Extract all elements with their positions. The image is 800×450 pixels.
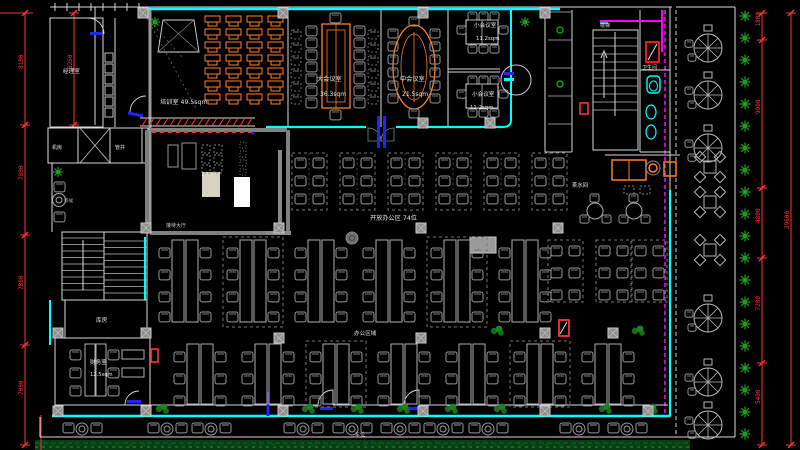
chair <box>431 292 442 302</box>
chair <box>214 145 222 153</box>
tree-icon <box>741 276 744 279</box>
training-desk <box>247 68 262 74</box>
chair <box>283 374 294 384</box>
desk-bench <box>609 344 621 404</box>
chair <box>551 268 562 278</box>
tree-icon <box>741 364 744 367</box>
hedge-dot <box>350 443 354 447</box>
tree-icon <box>741 254 744 257</box>
chair <box>174 374 185 384</box>
small-meeting-a-name: 小会议室 <box>474 21 497 29</box>
training-desk <box>226 29 241 35</box>
chair <box>540 248 551 258</box>
tree-icon <box>743 300 746 303</box>
parasol-spoke <box>708 415 718 425</box>
chair <box>363 292 374 302</box>
chair <box>623 352 634 362</box>
hedge-dot <box>519 443 523 447</box>
chair <box>623 374 634 384</box>
chair <box>227 248 238 258</box>
training-chair <box>229 22 238 26</box>
parasol-spoke <box>698 138 708 148</box>
parasol-spoke <box>708 48 718 58</box>
tree-icon <box>746 122 749 125</box>
chair <box>457 90 466 98</box>
chair <box>200 270 211 280</box>
hatch-tick <box>184 118 189 126</box>
workstation-group <box>548 240 583 302</box>
tree-icon <box>746 78 749 81</box>
chair <box>424 423 435 433</box>
pantry-label: 茶水间 <box>572 181 588 189</box>
training-chair <box>250 22 259 26</box>
tree-icon <box>743 58 746 61</box>
chair <box>457 26 466 34</box>
entrance-frame <box>377 116 380 148</box>
hatch-tick <box>247 118 252 126</box>
desk-bench <box>337 344 349 404</box>
chair <box>363 312 374 322</box>
sight-line <box>147 18 182 57</box>
circle <box>208 426 214 432</box>
hedge-dot <box>675 443 679 447</box>
training-chair <box>271 35 280 39</box>
desk <box>122 368 144 377</box>
tree-icon <box>741 61 744 64</box>
parasol-spoke <box>708 38 718 48</box>
tree-icon <box>741 215 744 218</box>
parasol-spoke <box>708 308 718 318</box>
fire-hydrant <box>580 103 588 114</box>
chair <box>551 246 562 256</box>
tree-icon <box>746 369 749 372</box>
wall-line <box>163 20 199 52</box>
chair <box>468 12 477 20</box>
chair <box>535 194 546 204</box>
training-chair <box>208 48 217 52</box>
medium-meeting-name: 中会议室 <box>400 75 425 83</box>
tree-icon <box>746 193 749 196</box>
chair <box>313 158 324 168</box>
chair <box>388 94 398 103</box>
circle <box>397 426 403 432</box>
locker <box>105 97 113 106</box>
large-meeting-name: 大会议室 <box>317 75 342 83</box>
chair <box>361 176 372 186</box>
chair <box>268 248 279 258</box>
door-sill <box>90 32 102 35</box>
tree-icon <box>741 435 744 438</box>
coffee-machine <box>649 164 657 172</box>
chair <box>227 312 238 322</box>
locker <box>105 53 113 62</box>
chair <box>472 312 483 322</box>
plant-pot <box>346 232 358 244</box>
chair <box>310 374 321 384</box>
hedge-dot <box>506 443 510 447</box>
chair <box>569 290 580 300</box>
door-arc <box>130 96 146 112</box>
chair <box>240 169 246 175</box>
chair <box>343 176 354 186</box>
tree-icon <box>741 391 744 394</box>
chair <box>487 194 498 204</box>
chair <box>685 417 693 424</box>
tree-icon <box>746 386 749 389</box>
hatch-tick <box>142 118 147 126</box>
parasol-spoke <box>708 425 718 435</box>
floorplan-linework: 8100780078007000825018009900480072005400… <box>0 3 796 450</box>
chair <box>555 396 566 406</box>
chair <box>688 324 696 331</box>
chair <box>479 76 488 84</box>
chair <box>409 158 420 168</box>
tree-icon <box>57 171 60 174</box>
workstation-group <box>436 153 471 210</box>
bush-icon <box>606 408 612 414</box>
chair <box>419 374 430 384</box>
circle <box>573 423 585 435</box>
chair <box>333 423 344 433</box>
training-chair <box>250 61 259 65</box>
chair <box>404 270 415 280</box>
chair <box>514 374 525 384</box>
appliance-icon <box>557 81 563 87</box>
training-desk <box>247 55 262 61</box>
chair <box>499 248 510 258</box>
chair <box>468 45 477 53</box>
bush-icon <box>501 408 507 414</box>
chair <box>159 248 170 258</box>
desk-bench <box>186 240 198 322</box>
chair <box>361 158 372 168</box>
chair <box>200 292 211 302</box>
chair <box>505 158 516 168</box>
chair <box>192 423 203 433</box>
chair <box>553 194 564 204</box>
training-desk <box>226 42 241 48</box>
chair <box>240 160 246 166</box>
circle <box>161 423 173 435</box>
desk-bench <box>512 240 524 322</box>
tree-icon <box>746 320 749 323</box>
hatch-tick <box>233 118 238 126</box>
chair <box>391 158 402 168</box>
chair <box>313 194 324 204</box>
training-chair <box>208 35 217 39</box>
training-desk <box>205 42 220 48</box>
chair <box>490 45 499 53</box>
appliance <box>624 186 634 194</box>
hedge-dot <box>610 443 614 447</box>
cabinet <box>182 143 196 169</box>
parasol-spoke <box>698 425 708 435</box>
chair <box>227 270 238 280</box>
hedge-dot <box>441 443 445 447</box>
desk-bench <box>473 344 485 404</box>
tree-icon <box>746 342 749 345</box>
chair <box>635 268 646 278</box>
chair <box>439 176 450 186</box>
chair <box>354 86 365 96</box>
tree-icon <box>746 171 749 174</box>
accent-dot <box>252 132 255 135</box>
chair <box>569 246 580 256</box>
chair <box>404 292 415 302</box>
chair <box>242 374 253 384</box>
hedge-dot <box>649 443 653 447</box>
hedge-dot <box>597 443 601 447</box>
door-sill <box>128 113 143 116</box>
training-desk <box>226 94 241 100</box>
chair <box>363 270 374 280</box>
hatch-tick <box>191 118 196 126</box>
chair <box>446 374 457 384</box>
tree-icon <box>741 369 744 372</box>
chair <box>617 246 628 256</box>
chair <box>202 145 210 153</box>
dimension-value: 7800 <box>18 165 25 180</box>
bush-icon <box>639 330 645 336</box>
chair <box>295 312 306 322</box>
chair <box>619 215 628 223</box>
chair <box>283 396 294 406</box>
training-chair <box>229 74 238 78</box>
chair <box>354 50 365 60</box>
tree-icon <box>746 39 749 42</box>
training-chair <box>271 87 280 91</box>
tree-icon <box>746 430 749 433</box>
locker <box>105 75 113 84</box>
chair <box>623 396 634 406</box>
tree-icon <box>741 413 744 416</box>
circle <box>76 423 88 435</box>
chair <box>540 292 551 302</box>
workstation-group <box>596 240 631 302</box>
bush-icon <box>309 408 315 414</box>
chair <box>70 350 81 360</box>
circle <box>79 426 85 432</box>
workstation-group <box>632 240 667 302</box>
hedge <box>35 440 690 450</box>
chair <box>215 374 226 384</box>
tree-icon <box>743 212 746 215</box>
parasol-spoke <box>698 38 708 48</box>
desk-bench <box>391 344 403 404</box>
tree-icon <box>743 344 746 347</box>
tree-icon <box>743 234 746 237</box>
open-office-label: 开放办公区 74位 <box>370 214 417 222</box>
chair <box>499 26 508 34</box>
hedge-dot <box>142 443 146 447</box>
desk-bench <box>201 344 213 404</box>
chair <box>159 270 170 280</box>
finance-room-area: 12.5sqm <box>90 372 113 378</box>
parasol-spoke <box>698 95 708 105</box>
parasol-spoke <box>708 85 718 95</box>
chair <box>368 56 378 65</box>
chair <box>306 50 317 60</box>
desk-bench <box>187 344 199 404</box>
parasol-spoke <box>698 308 708 318</box>
chair <box>535 176 546 186</box>
training-chair <box>229 61 238 65</box>
bush-icon <box>358 408 364 414</box>
chair <box>363 248 374 258</box>
hedge-dot <box>298 443 302 447</box>
training-chair <box>208 74 217 78</box>
tree-icon <box>741 122 744 125</box>
chair <box>283 352 294 362</box>
storage-label: 库房 <box>96 316 108 324</box>
tree-icon <box>741 100 744 103</box>
training-room-label: 培训室 49.5sqm <box>160 98 208 106</box>
chair <box>569 268 580 278</box>
chair <box>617 290 628 300</box>
chair <box>617 268 628 278</box>
tree-icon <box>741 56 744 59</box>
chair <box>452 423 463 433</box>
tree-icon <box>743 388 746 391</box>
chair <box>70 368 81 378</box>
circle <box>164 426 170 432</box>
parasol-spoke <box>698 415 708 425</box>
machine-room-label: 机房 <box>52 144 62 151</box>
chair <box>688 388 696 395</box>
training-chair <box>208 100 217 104</box>
tree-icon <box>741 83 744 86</box>
tree-icon <box>746 364 749 367</box>
training-chair <box>271 61 280 65</box>
hedge-dot <box>51 443 55 447</box>
tree-icon <box>746 254 749 257</box>
chair <box>291 43 301 52</box>
cad-floorplan-canvas[interactable]: 8100780078007000825018009900480072005400… <box>0 0 800 450</box>
locker <box>105 64 113 73</box>
tree-icon <box>741 342 744 345</box>
training-desk <box>226 16 241 22</box>
chair <box>70 386 81 396</box>
parasol-spoke <box>698 48 708 58</box>
terrace-chair <box>704 359 712 365</box>
training-chair <box>229 48 238 52</box>
chair <box>215 352 226 362</box>
desk-bench <box>458 240 470 322</box>
chair <box>551 290 562 300</box>
chair <box>295 176 306 186</box>
chair <box>306 98 317 108</box>
training-desk <box>247 94 262 100</box>
tree-icon <box>741 237 744 240</box>
training-desk <box>226 68 241 74</box>
large-meeting-area: 36.3sqm <box>320 91 346 98</box>
workstation-group <box>340 153 375 210</box>
chair <box>582 396 593 406</box>
desk-bench <box>254 240 266 322</box>
hedge-dot <box>584 443 588 447</box>
circle <box>440 426 446 432</box>
tree-icon <box>746 12 749 15</box>
circle <box>621 423 633 435</box>
hedge-dot <box>155 443 159 447</box>
hatch-tick <box>177 118 182 126</box>
tree-icon <box>743 190 746 193</box>
chair <box>306 26 317 36</box>
chair <box>487 374 498 384</box>
chair <box>653 290 664 300</box>
parasol-spoke <box>698 372 708 382</box>
chair <box>306 38 317 48</box>
tree-icon <box>746 56 749 59</box>
tree-icon <box>741 78 744 81</box>
tree-icon <box>746 188 749 191</box>
hatch-tick <box>240 118 245 126</box>
chair <box>310 352 321 362</box>
chair <box>214 165 222 173</box>
tree-icon <box>746 325 749 328</box>
hatch-tick <box>163 118 168 126</box>
circle <box>485 426 491 432</box>
bush-icon <box>498 330 504 336</box>
cabinet <box>168 145 178 167</box>
hedge-dot <box>64 443 68 447</box>
door-arc <box>318 390 333 405</box>
training-desk <box>205 16 220 22</box>
tree-icon <box>743 432 746 435</box>
chair <box>553 176 564 186</box>
chair <box>582 374 593 384</box>
hedge-dot <box>259 443 263 447</box>
chair <box>685 374 693 381</box>
terrace-chair <box>704 295 712 301</box>
locker <box>105 86 113 95</box>
tree-icon <box>741 149 744 152</box>
training-chair <box>271 22 280 26</box>
tree-icon <box>746 215 749 218</box>
desk-bench <box>527 344 539 404</box>
chair <box>200 248 211 258</box>
chair <box>514 396 525 406</box>
chair <box>457 176 468 186</box>
hedge-dot <box>662 443 666 447</box>
chair <box>653 246 664 256</box>
training-desk <box>247 29 262 35</box>
chair <box>419 352 430 362</box>
chair <box>479 12 488 20</box>
glass-wall <box>503 120 511 127</box>
desk-bench <box>255 344 267 404</box>
desk-bench <box>526 240 538 322</box>
tree-icon <box>746 413 749 416</box>
desk-bench <box>376 240 388 322</box>
tree-icon <box>741 166 744 169</box>
hedge-dot <box>207 443 211 447</box>
chair <box>354 98 365 108</box>
chair <box>685 87 693 94</box>
chair <box>351 352 362 362</box>
tree-icon <box>741 12 744 15</box>
desk-bench <box>172 240 184 322</box>
hedge-dot <box>636 443 640 447</box>
chair <box>553 158 564 168</box>
hedge-dot <box>233 443 237 447</box>
training-desk <box>268 55 283 61</box>
hatch-tick <box>226 118 231 126</box>
chair <box>268 312 279 322</box>
chair <box>351 374 362 384</box>
training-chair <box>250 35 259 39</box>
chair <box>430 94 440 103</box>
